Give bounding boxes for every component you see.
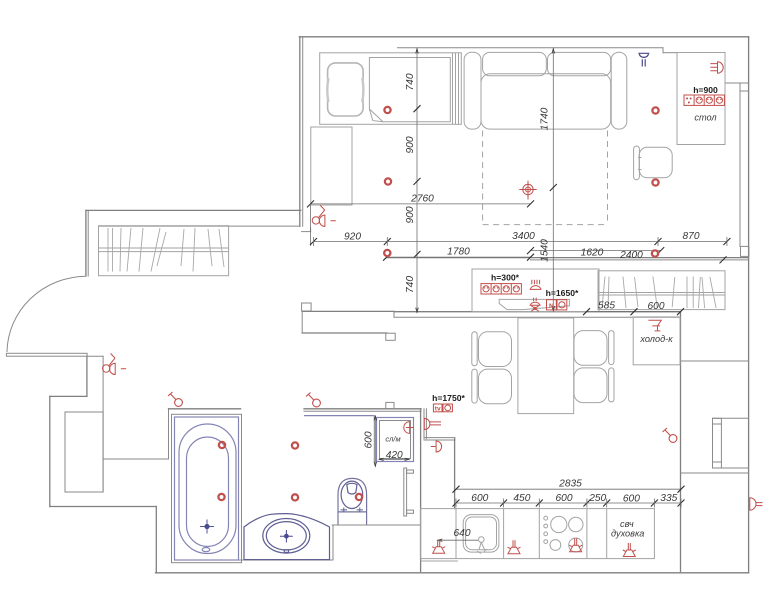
svg-text:600: 600	[364, 431, 375, 448]
svg-text:1780: 1780	[447, 247, 470, 258]
svg-text:духовка: духовка	[611, 529, 644, 539]
svg-text:640: 640	[454, 528, 471, 539]
svg-text:2835: 2835	[558, 478, 582, 489]
svg-text:1740: 1740	[540, 107, 551, 130]
svg-text:холод-к: холод-к	[639, 334, 673, 344]
svg-text:420: 420	[386, 450, 403, 461]
svg-text:N: N	[549, 303, 554, 310]
svg-text:600: 600	[623, 493, 640, 504]
svg-text:2400: 2400	[619, 250, 643, 261]
svg-text:h=900: h=900	[693, 85, 718, 95]
svg-text:2760: 2760	[410, 194, 434, 205]
svg-text:600: 600	[471, 493, 488, 504]
svg-text:1540: 1540	[540, 239, 551, 262]
svg-text:tv: tv	[435, 405, 441, 412]
svg-text:600: 600	[648, 301, 665, 312]
svg-text:585: 585	[598, 301, 615, 312]
svg-text:h=300*: h=300*	[491, 273, 520, 283]
svg-text:740: 740	[405, 276, 416, 293]
svg-text:стол: стол	[694, 112, 716, 122]
svg-text:h=1750*: h=1750*	[432, 393, 465, 403]
svg-text:900: 900	[405, 206, 416, 223]
svg-text:450: 450	[513, 493, 530, 504]
svg-text:740: 740	[405, 73, 416, 90]
svg-text:600: 600	[556, 493, 573, 504]
svg-text:сл/м: сл/м	[385, 435, 400, 444]
svg-text:900: 900	[405, 136, 416, 153]
svg-text:h=1650*: h=1650*	[546, 288, 579, 298]
svg-text:335: 335	[660, 493, 677, 504]
svg-text:920: 920	[344, 231, 361, 242]
svg-text:1620: 1620	[581, 248, 604, 259]
svg-text:свч: свч	[620, 519, 634, 529]
svg-text:3400: 3400	[512, 231, 535, 242]
svg-text:870: 870	[683, 231, 700, 242]
svg-text:250: 250	[588, 493, 606, 504]
